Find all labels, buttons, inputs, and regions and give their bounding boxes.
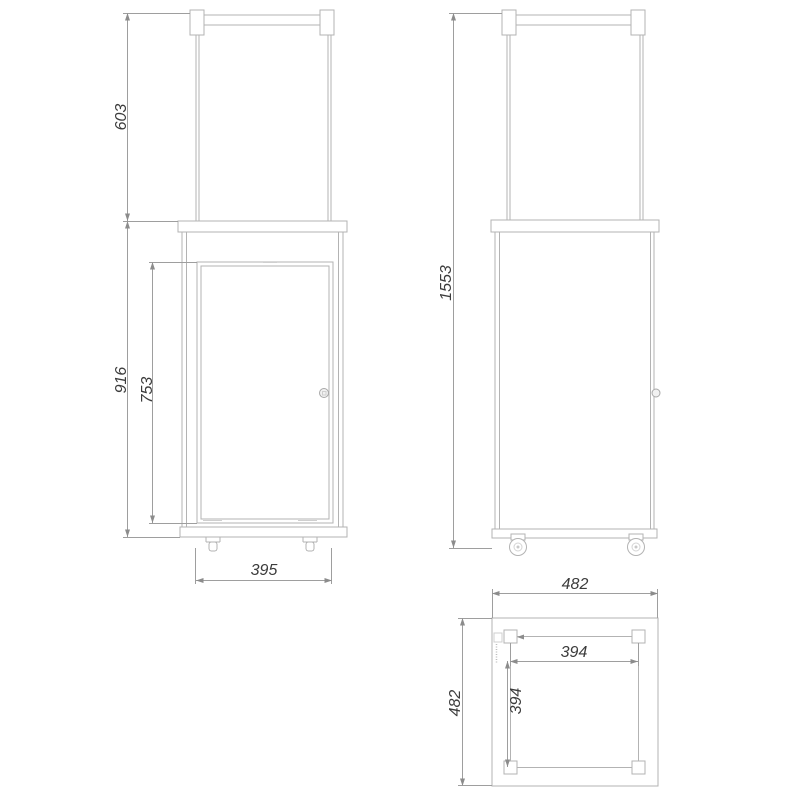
side-top-frame — [502, 10, 645, 220]
dim-label-394-vertical: 394 — [508, 688, 525, 715]
side-body-panel — [495, 232, 654, 529]
front-top-frame — [190, 10, 334, 221]
dim-side-overall-height: 1553 — [438, 13, 502, 549]
front-view: 603 916 753 395 — [113, 10, 347, 584]
dim-482l-arrow-down — [460, 779, 465, 787]
dim-label-916: 916 — [113, 367, 130, 394]
dim-label-395: 395 — [251, 562, 278, 579]
front-caster-left-wheel — [209, 542, 217, 551]
side-caster-right-hub — [635, 546, 638, 549]
side-caster-right — [628, 534, 645, 556]
dim-label-753: 753 — [139, 377, 156, 404]
front-post-right — [320, 10, 334, 35]
side-crossbar — [516, 15, 631, 25]
dim-753-arrow-down — [150, 516, 155, 524]
front-caster-right-flange — [303, 537, 317, 542]
front-door-glass — [201, 266, 329, 519]
dim-482t-arrow-left — [492, 591, 500, 596]
front-caster-left — [206, 537, 220, 551]
dim-603-arrow-down — [125, 214, 130, 222]
dim-front-door-width: 395 — [196, 548, 333, 584]
side-caster-left-hub — [517, 546, 520, 549]
top-corner-post-br — [632, 761, 645, 774]
top-view: 482 482 394 394 — [447, 576, 658, 786]
side-rod-right — [640, 35, 643, 220]
front-post-left — [190, 10, 204, 35]
side-view: 1553 — [438, 10, 660, 556]
dim-1553-arrow-down — [451, 541, 456, 549]
drawing-sheet: 603 916 753 395 — [0, 0, 800, 800]
side-body — [495, 232, 660, 529]
front-top-cap — [178, 221, 347, 232]
dim-1553-arrow-up — [451, 13, 456, 21]
dim-603-arrow-up — [125, 13, 130, 21]
front-door-knob — [320, 389, 329, 398]
dim-top-overall-width: 482 — [492, 576, 658, 618]
side-door-knob — [652, 389, 660, 397]
top-corner-post-tl — [504, 630, 517, 643]
top-corner-post-tr — [632, 630, 645, 643]
dim-753-arrow-up — [150, 262, 155, 270]
dim-482t-arrow-right — [651, 591, 659, 596]
top-corner-post-bl — [504, 761, 517, 774]
dim-label-482-top: 482 — [562, 576, 589, 593]
dim-front-upper-frame-height: 603 — [113, 13, 190, 221]
dim-395-arrow-right — [325, 578, 333, 583]
front-caster-right-wheel — [306, 542, 314, 551]
dim-label-394-horizontal: 394 — [561, 644, 588, 661]
dim-916-arrow-up — [125, 221, 130, 229]
side-top-cap — [491, 220, 659, 232]
technical-drawing-canvas: 603 916 753 395 — [0, 0, 800, 800]
dim-482l-arrow-up — [460, 618, 465, 626]
front-base-plate — [180, 527, 347, 537]
dim-916-arrow-down — [125, 530, 130, 538]
front-door — [197, 262, 333, 523]
side-rod-left — [507, 35, 510, 220]
front-rod-left — [196, 35, 199, 221]
side-post-left — [502, 10, 516, 35]
side-caster-left — [510, 534, 527, 556]
dim-label-482-left: 482 — [447, 690, 464, 717]
front-caster-right — [303, 537, 317, 551]
side-post-right — [631, 10, 645, 35]
dim-395-arrow-left — [196, 578, 204, 583]
front-caster-left-flange — [206, 537, 220, 542]
dim-label-1553: 1553 — [438, 265, 455, 301]
dim-label-603: 603 — [113, 104, 130, 131]
front-crossbar — [204, 15, 320, 25]
front-rod-right — [328, 35, 331, 221]
dim-top-overall-depth: 482 — [447, 618, 492, 786]
